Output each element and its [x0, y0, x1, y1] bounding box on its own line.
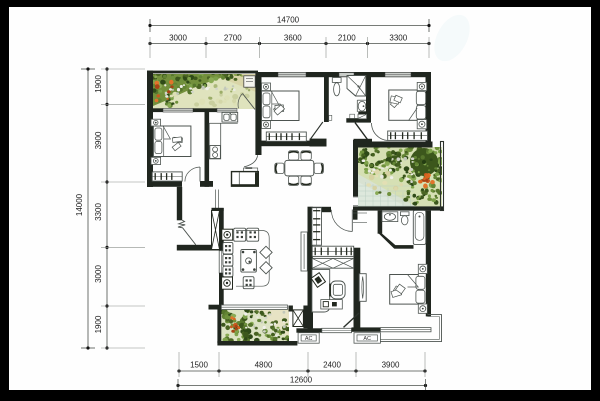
svg-text:14700: 14700	[277, 16, 300, 25]
svg-text:4800: 4800	[255, 361, 273, 370]
svg-text:3900: 3900	[382, 361, 400, 370]
svg-text:3900: 3900	[94, 131, 103, 149]
svg-text:3000: 3000	[169, 34, 187, 43]
svg-text:3000: 3000	[94, 265, 103, 283]
svg-text:3600: 3600	[284, 34, 302, 43]
svg-text:1900: 1900	[94, 315, 103, 333]
svg-text:3300: 3300	[389, 34, 407, 43]
svg-text:2400: 2400	[323, 361, 341, 370]
svg-text:14000: 14000	[75, 193, 84, 216]
svg-text:AC: AC	[363, 336, 371, 342]
svg-text:2100: 2100	[338, 34, 356, 43]
svg-text:2700: 2700	[224, 34, 242, 43]
svg-text:1900: 1900	[94, 75, 103, 93]
svg-text:3300: 3300	[94, 203, 103, 221]
svg-text:1500: 1500	[190, 361, 208, 370]
svg-text:AC: AC	[305, 336, 313, 342]
svg-text:12600: 12600	[290, 376, 313, 385]
